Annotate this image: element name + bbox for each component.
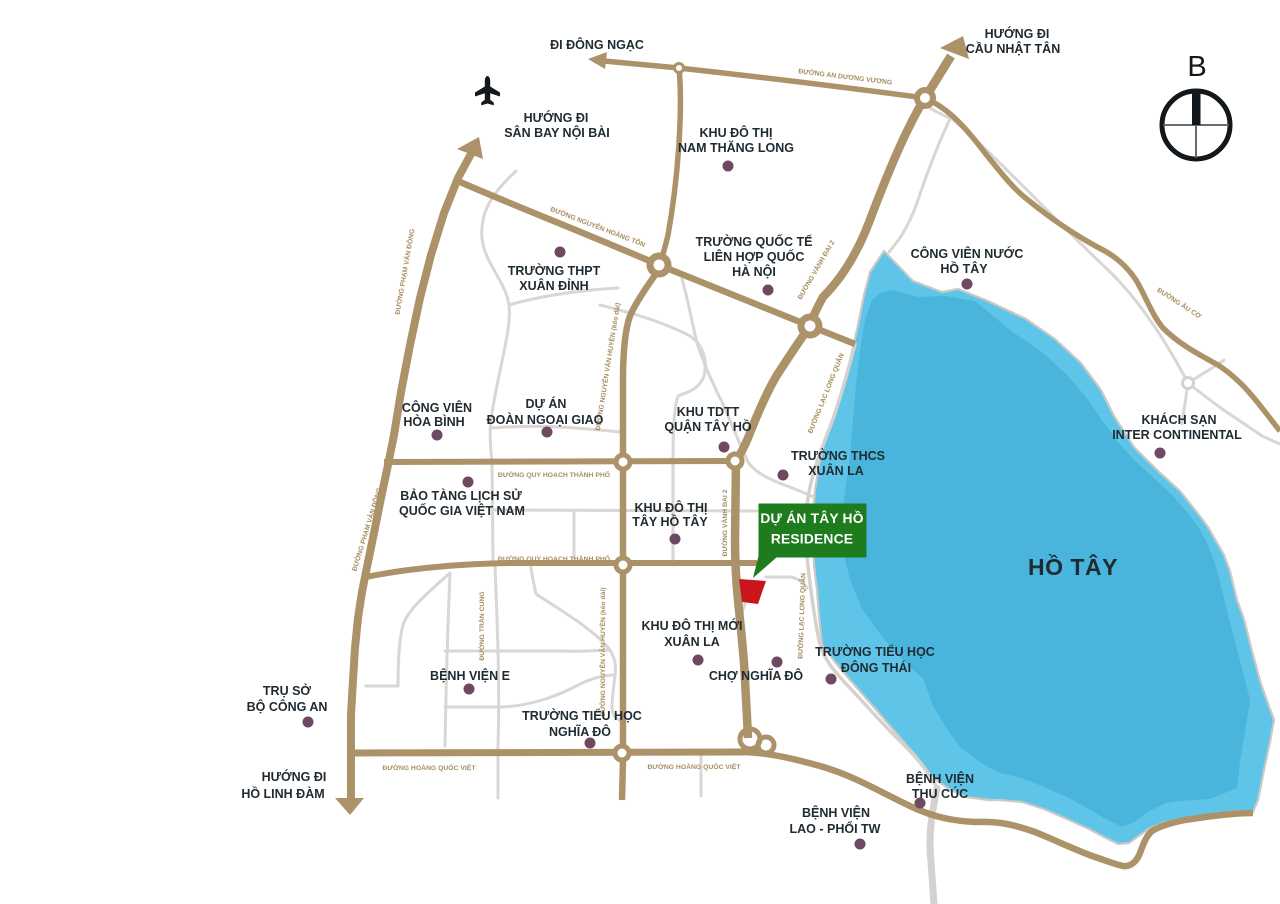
svg-text:CẦU NHẬT TÂN: CẦU NHẬT TÂN — [966, 41, 1060, 56]
svg-text:LAO - PHỔI TW: LAO - PHỔI TW — [790, 821, 881, 836]
svg-text:ĐƯỜNG LẠC LONG QUÂN: ĐƯỜNG LẠC LONG QUÂN — [796, 573, 808, 659]
svg-text:TRƯỜNG TIỂU HỌC: TRƯỜNG TIỂU HỌC — [522, 708, 642, 723]
svg-text:HÒA BÌNH: HÒA BÌNH — [403, 414, 464, 429]
svg-text:NAM THĂNG LONG: NAM THĂNG LONG — [678, 140, 794, 155]
svg-text:KHU ĐÔ THỊ MỚI: KHU ĐÔ THỊ MỚI — [642, 618, 743, 633]
svg-text:DỰ ÁN TÂY HỒ: DỰ ÁN TÂY HỒ — [760, 509, 863, 526]
svg-text:NGHĨA ĐÔ: NGHĨA ĐÔ — [549, 724, 611, 739]
svg-text:ĐI ĐÔNG NGẠC: ĐI ĐÔNG NGẠC — [550, 37, 644, 52]
svg-text:QUỐC GIA VIỆT NAM: QUỐC GIA VIỆT NAM — [399, 503, 525, 518]
svg-text:ĐƯỜNG NGUYỄN VĂN HUYỀN (kéo dà: ĐƯỜNG NGUYỄN VĂN HUYỀN (kéo dài) — [597, 587, 607, 716]
svg-text:HỒ LINH ĐÀM: HỒ LINH ĐÀM — [241, 786, 324, 801]
svg-text:ĐƯỜNG ÂU CƠ: ĐƯỜNG ÂU CƠ — [1156, 285, 1204, 320]
svg-text:BỘ CÔNG AN: BỘ CÔNG AN — [247, 699, 328, 714]
svg-text:ĐOÀN NGOẠI GIAO: ĐOÀN NGOẠI GIAO — [487, 412, 604, 427]
svg-text:LIÊN HỢP QUỐC: LIÊN HỢP QUỐC — [704, 249, 805, 264]
svg-text:ĐƯỜNG PHẠM VĂN ĐỒNG: ĐƯỜNG PHẠM VĂN ĐỒNG — [392, 228, 417, 315]
svg-text:SÂN BAY NỘI BÀI: SÂN BAY NỘI BÀI — [504, 125, 610, 140]
svg-text:ĐƯỜNG VÀNH ĐAI 2: ĐƯỜNG VÀNH ĐAI 2 — [720, 489, 729, 556]
svg-text:HƯỚNG ĐI: HƯỚNG ĐI — [985, 26, 1050, 41]
svg-text:TRƯỜNG THCS: TRƯỜNG THCS — [791, 448, 885, 463]
svg-text:TRƯỜNG TIỂU HỌC: TRƯỜNG TIỂU HỌC — [815, 644, 935, 659]
svg-text:XUÂN LA: XUÂN LA — [664, 634, 720, 649]
svg-text:HƯỚNG ĐI: HƯỚNG ĐI — [262, 769, 327, 784]
svg-text:TRỤ SỞ: TRỤ SỞ — [263, 683, 312, 698]
svg-text:HỒ TÂY: HỒ TÂY — [940, 261, 988, 276]
svg-text:BẢO TÀNG LỊCH SỬ: BẢO TÀNG LỊCH SỬ — [400, 488, 522, 503]
svg-text:B: B — [1187, 51, 1206, 83]
svg-text:KHÁCH SẠN: KHÁCH SẠN — [1142, 412, 1217, 427]
svg-text:XUÂN ĐỈNH: XUÂN ĐỈNH — [519, 278, 588, 293]
svg-text:QUẬN TÂY HỒ: QUẬN TÂY HỒ — [664, 419, 752, 434]
svg-text:CHỢ NGHĨA ĐÔ: CHỢ NGHĨA ĐÔ — [709, 668, 804, 683]
svg-text:TÂY HỒ TÂY: TÂY HỒ TÂY — [632, 514, 708, 529]
svg-text:TRƯỜNG THPT: TRƯỜNG THPT — [508, 263, 601, 278]
svg-text:BỆNH VIỆN E: BỆNH VIỆN E — [430, 668, 510, 683]
svg-text:RESIDENCE: RESIDENCE — [771, 532, 853, 547]
svg-text:CÔNG VIÊN NƯỚC: CÔNG VIÊN NƯỚC — [911, 246, 1024, 261]
svg-text:ĐƯỜNG NGUYỄN VĂN HUYỀN (kéo dà: ĐƯỜNG NGUYỄN VĂN HUYỀN (kéo dài) — [592, 302, 622, 431]
svg-text:HÀ NỘI: HÀ NỘI — [732, 264, 776, 279]
svg-text:XUÂN LA: XUÂN LA — [808, 463, 864, 478]
svg-text:HỒ TÂY: HỒ TÂY — [1028, 553, 1118, 580]
svg-text:BỆNH VIỆN: BỆNH VIỆN — [802, 805, 870, 820]
svg-text:DỰ ÁN: DỰ ÁN — [526, 396, 567, 411]
svg-text:ĐÔNG THÁI: ĐÔNG THÁI — [841, 660, 911, 675]
svg-text:ĐƯỜNG HOÀNG QUỐC VIỆT: ĐƯỜNG HOÀNG QUỐC VIỆT — [647, 761, 741, 771]
svg-text:TRƯỜNG QUỐC TẾ: TRƯỜNG QUỐC TẾ — [696, 234, 813, 249]
svg-text:INTER CONTINENTAL: INTER CONTINENTAL — [1112, 428, 1242, 442]
svg-text:ĐƯỜNG QUY HOẠCH THÀNH PHỐ: ĐƯỜNG QUY HOẠCH THÀNH PHỐ — [498, 469, 610, 479]
svg-text:KHU ĐÔ THỊ: KHU ĐÔ THỊ — [635, 500, 708, 515]
svg-text:BỆNH VIỆN: BỆNH VIỆN — [906, 771, 974, 786]
svg-text:HƯỚNG ĐI: HƯỚNG ĐI — [524, 110, 589, 125]
svg-text:CÔNG VIÊN: CÔNG VIÊN — [402, 400, 472, 415]
svg-text:KHU ĐÔ THỊ: KHU ĐÔ THỊ — [700, 125, 773, 140]
svg-text:KHU TDTT: KHU TDTT — [677, 405, 740, 419]
svg-text:ĐƯỜNG QUY HOẠCH THÀNH PHỐ: ĐƯỜNG QUY HOẠCH THÀNH PHỐ — [498, 553, 610, 563]
svg-text:ĐƯỜNG HOÀNG QUỐC VIỆT: ĐƯỜNG HOÀNG QUỐC VIỆT — [382, 762, 476, 772]
